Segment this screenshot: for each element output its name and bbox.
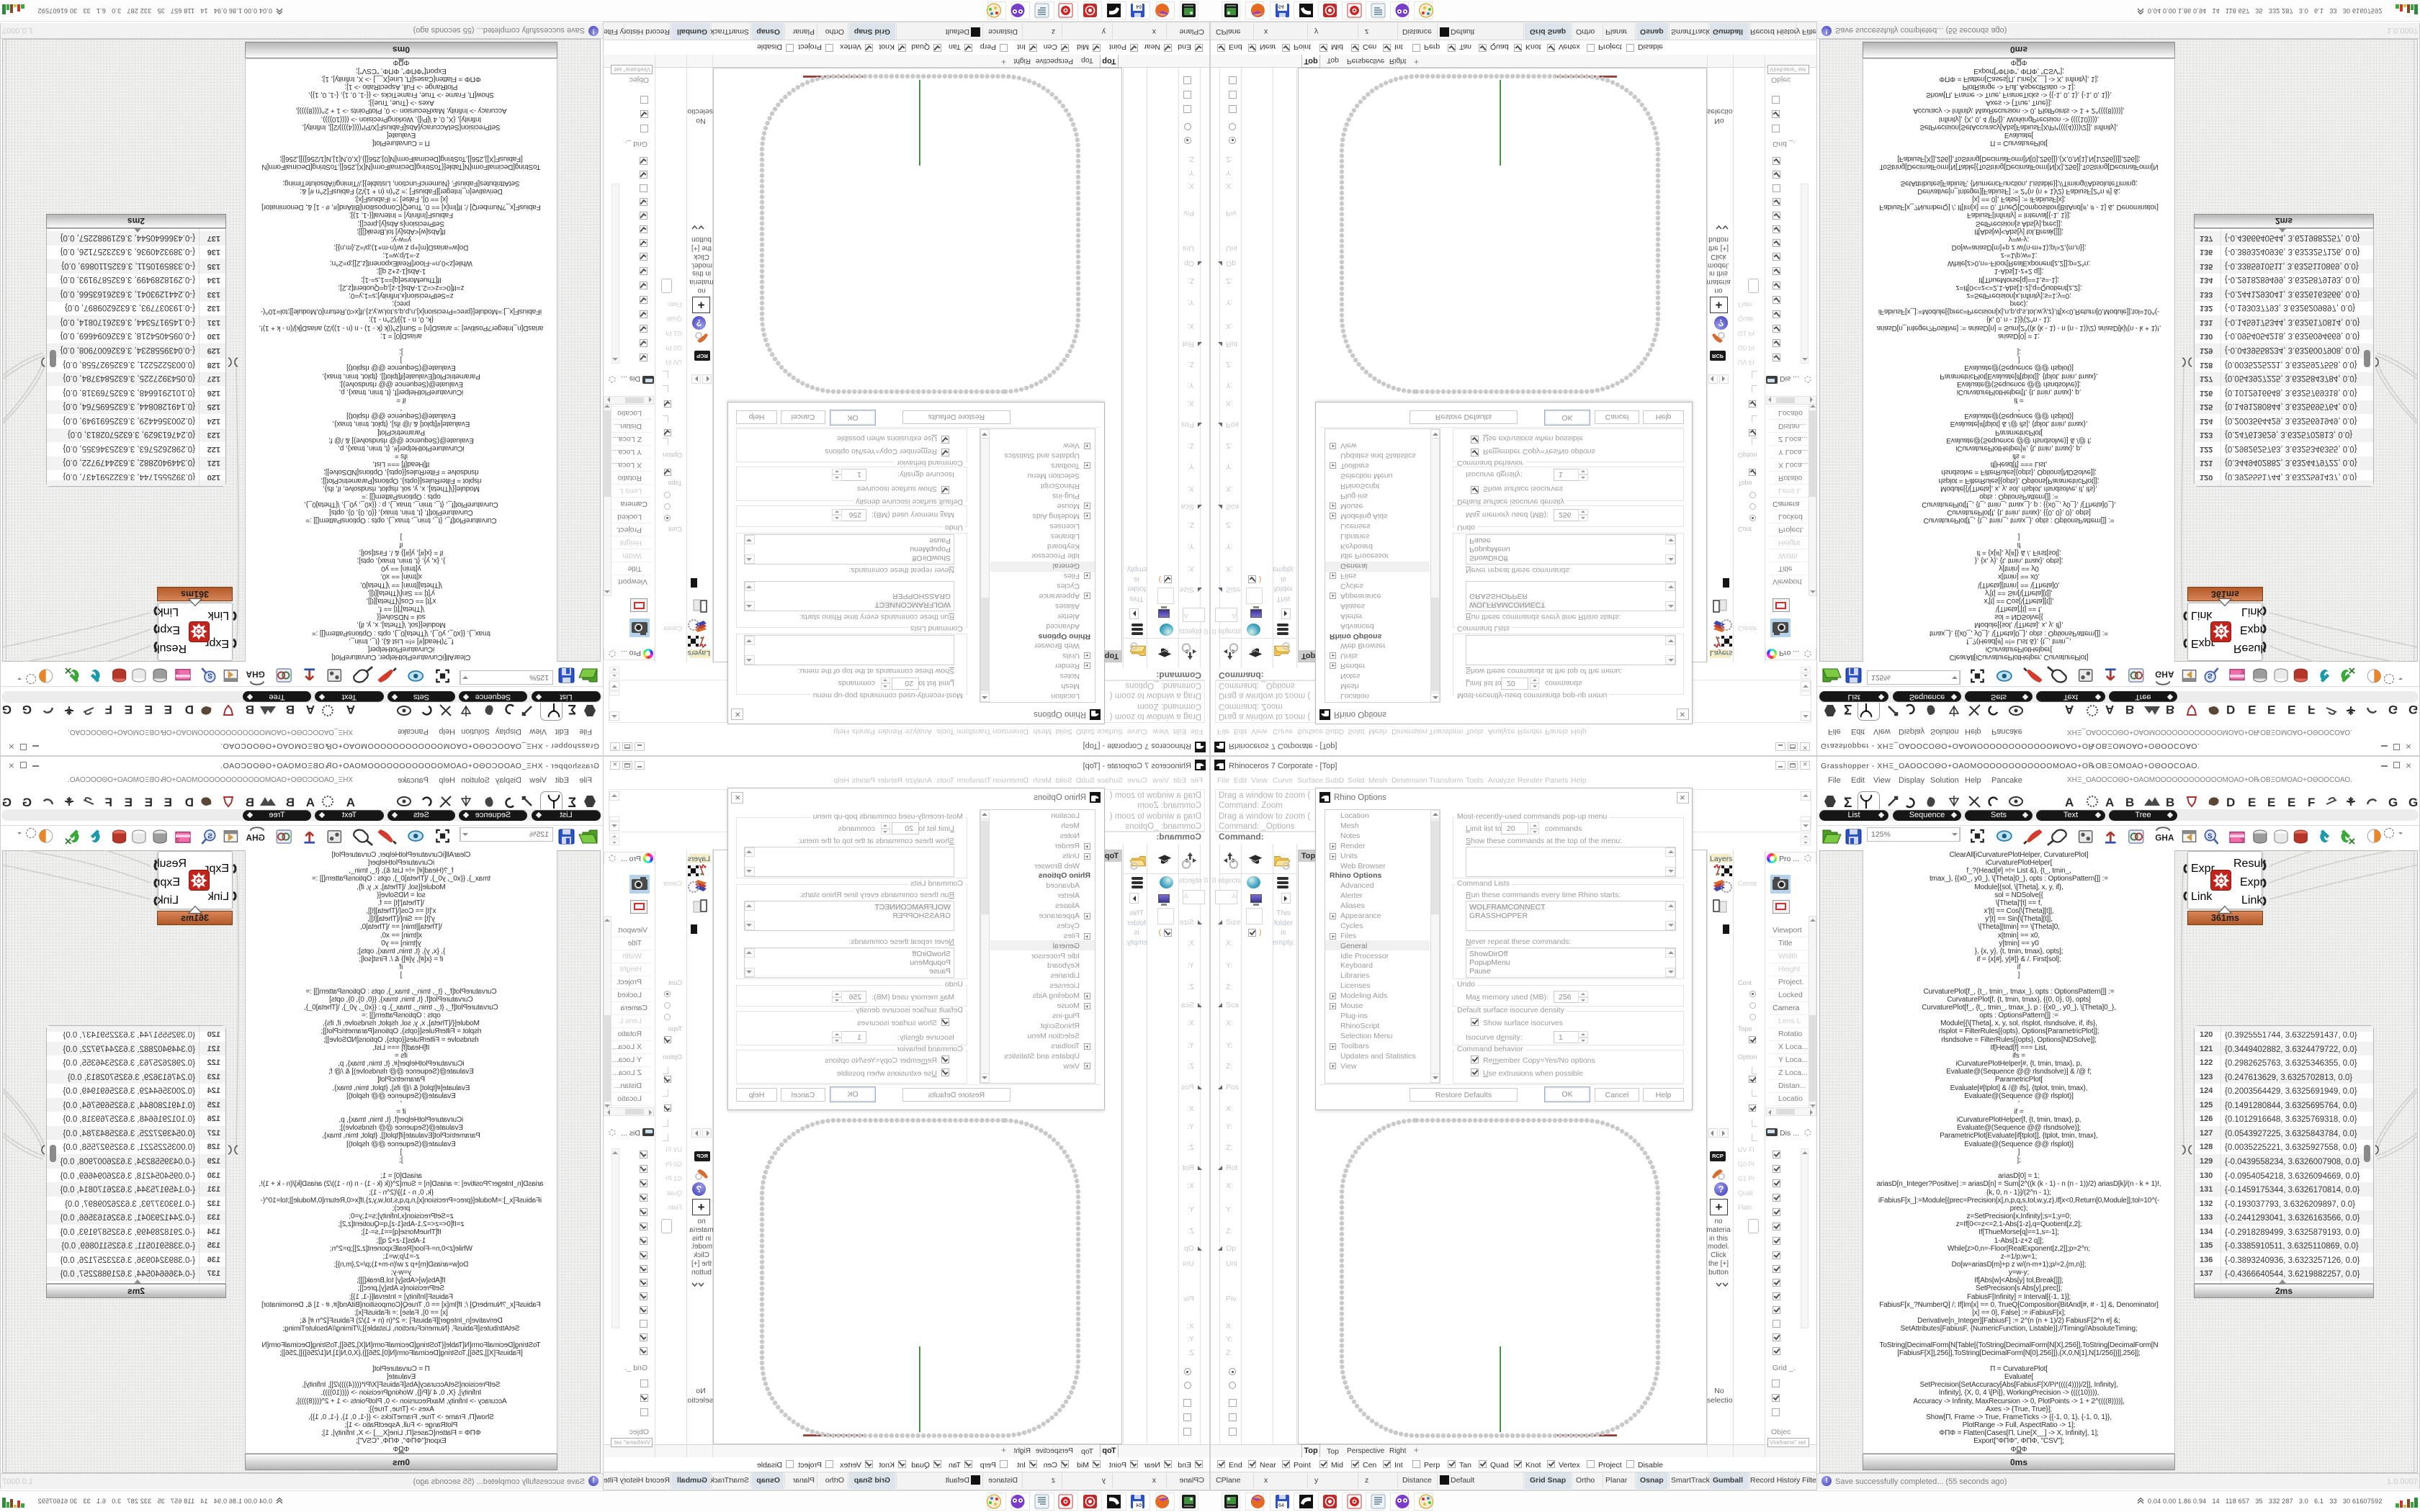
svg-text:E: E — [164, 796, 172, 809]
svg-text:Σ: Σ — [1844, 796, 1852, 810]
svg-text:E: E — [2267, 796, 2275, 809]
svg-text:F: F — [105, 796, 112, 809]
svg-text:?: ? — [2241, 837, 2244, 844]
svg-text:GHA: GHA — [246, 832, 265, 842]
svg-text:S: S — [207, 833, 212, 841]
svg-text:Σ: Σ — [568, 702, 576, 716]
svg-text:?: ? — [2241, 668, 2244, 675]
svg-text:A: A — [346, 796, 355, 809]
svg-text:G: G — [2388, 796, 2398, 809]
svg-text:Σ: Σ — [1844, 702, 1852, 716]
svg-text:G: G — [22, 703, 32, 716]
svg-text:A: A — [306, 703, 315, 716]
svg-text:B: B — [246, 703, 254, 716]
svg-text:E: E — [125, 796, 133, 809]
svg-text:?: ? — [176, 837, 179, 844]
svg-text:A: A — [306, 796, 315, 809]
svg-text:A: A — [2105, 703, 2114, 716]
svg-text:GHA: GHA — [246, 670, 265, 680]
svg-text:G: G — [22, 796, 32, 809]
svg-text:S: S — [2208, 671, 2213, 679]
svg-text:B: B — [286, 703, 295, 716]
svg-text:G: G — [2408, 703, 2418, 716]
svg-text:D: D — [185, 703, 194, 716]
svg-text:G: G — [2, 796, 12, 809]
svg-text:E: E — [145, 796, 153, 809]
svg-text:B: B — [2166, 703, 2174, 716]
svg-text:B: B — [2125, 703, 2134, 716]
svg-text:A: A — [2105, 796, 2114, 809]
svg-text:E: E — [164, 703, 172, 716]
svg-text:64: 64 — [1136, 4, 1142, 9]
svg-text:E: E — [125, 703, 133, 716]
svg-text:G: G — [2408, 796, 2418, 809]
svg-text:D: D — [2226, 796, 2235, 809]
svg-text:Σ: Σ — [568, 796, 576, 810]
svg-text:E: E — [2248, 703, 2256, 716]
svg-text:?: ? — [176, 668, 179, 675]
svg-text:GHA: GHA — [2155, 670, 2174, 680]
svg-text:B: B — [286, 796, 295, 809]
svg-text:S: S — [2208, 833, 2213, 841]
svg-text:B: B — [246, 796, 254, 809]
svg-text:E: E — [2248, 796, 2256, 809]
svg-text:64: 64 — [1278, 1503, 1284, 1508]
svg-text:A: A — [2065, 796, 2074, 809]
svg-text:F: F — [2308, 796, 2315, 809]
svg-text:A: A — [2065, 703, 2074, 716]
svg-text:A: A — [346, 703, 355, 716]
svg-text:B: B — [2166, 796, 2174, 809]
svg-text:64: 64 — [1278, 4, 1284, 9]
svg-text:D: D — [185, 796, 194, 809]
svg-text:G: G — [2388, 703, 2398, 716]
svg-text:D: D — [2226, 703, 2235, 716]
svg-text:64: 64 — [1136, 1503, 1142, 1508]
svg-text:S: S — [207, 671, 212, 679]
svg-text:E: E — [2287, 796, 2295, 809]
svg-text:B: B — [2125, 796, 2134, 809]
svg-text:F: F — [2308, 703, 2315, 716]
svg-text:F: F — [105, 703, 112, 716]
svg-text:E: E — [2267, 703, 2275, 716]
svg-text:G: G — [2, 703, 12, 716]
svg-text:GHA: GHA — [2155, 832, 2174, 842]
svg-text:E: E — [2287, 703, 2295, 716]
svg-text:E: E — [145, 703, 153, 716]
